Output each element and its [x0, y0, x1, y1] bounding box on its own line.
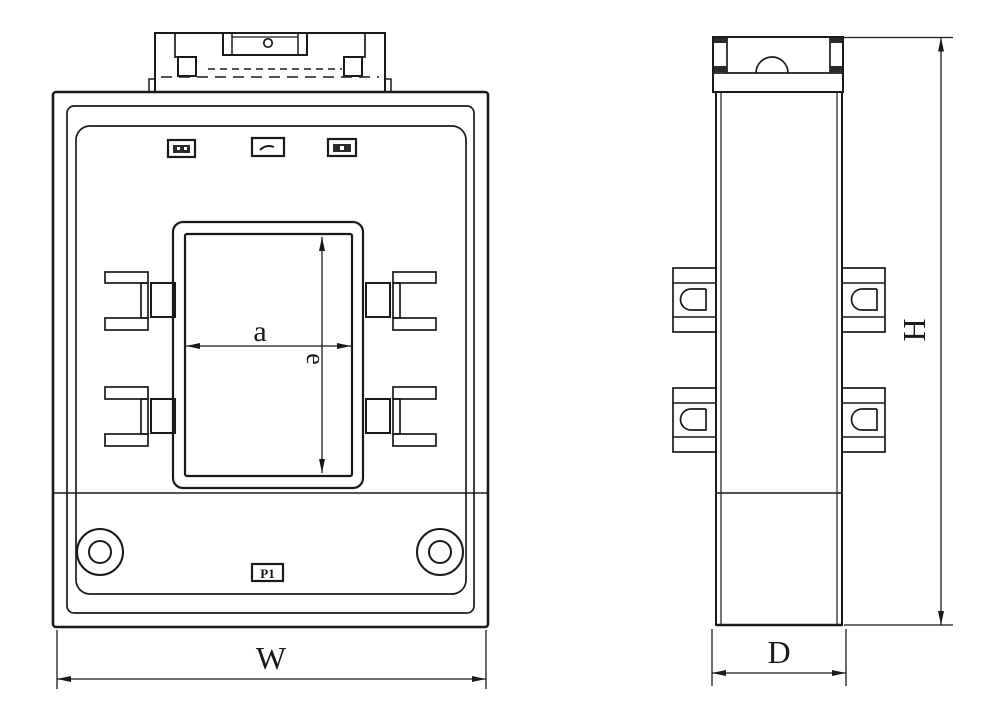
dim-w-arrow-right [472, 676, 486, 682]
clamp-upper-left [105, 272, 175, 330]
dim-w: W [57, 630, 486, 689]
front-view: P1 a e W [53, 33, 488, 689]
side-body [716, 92, 842, 625]
dim-h-arrow-bottom [938, 611, 944, 625]
dim-a-arrow-left [186, 343, 200, 349]
terminal-cover-plate [223, 33, 307, 55]
terminal-marking-center [252, 138, 284, 156]
dim-e: e [301, 237, 330, 473]
dim-d-arrow-right [832, 670, 846, 676]
cap-arch [756, 57, 788, 73]
front-body-frames [53, 92, 488, 627]
terminal-marking-right [328, 139, 356, 156]
p1-terminal-label: P1 [260, 566, 274, 581]
side-cap [713, 37, 843, 92]
clamp-upper-right [366, 272, 436, 330]
dim-e-arrow-bottom [319, 459, 325, 473]
dim-d-label: D [767, 634, 790, 670]
window-outer-frame [173, 222, 363, 488]
dim-h-label: H [896, 318, 932, 341]
p1-terminal-badge: P1 [252, 564, 283, 581]
clamp-lower-right [366, 387, 436, 446]
dim-a-label: a [253, 315, 266, 348]
terminal-marking-left [168, 140, 195, 157]
dim-e-arrow-top [319, 237, 325, 251]
mounting-hole-right [417, 529, 463, 575]
dim-a-arrow-right [337, 343, 351, 349]
terminal-post-right [344, 57, 362, 76]
side-clamp-upper-left [673, 268, 716, 332]
side-clamp-lower-left [673, 388, 716, 452]
mounting-hole-left [77, 529, 123, 575]
technical-drawing-canvas: P1 a e W [0, 0, 981, 716]
side-view: H D [673, 37, 953, 686]
terminal-post-left [178, 57, 196, 76]
dim-d-arrow-left [712, 670, 726, 676]
dim-a: a [186, 315, 351, 349]
cover-screw-hole [264, 39, 272, 47]
dim-w-label: W [256, 640, 287, 676]
side-clamp-upper-right [842, 268, 885, 332]
dim-h-arrow-top [938, 38, 944, 52]
front-terminal-block [149, 33, 391, 92]
dim-w-arrow-left [57, 676, 71, 682]
core-window [173, 222, 363, 488]
clamp-lower-left [105, 387, 175, 446]
dim-e-label: e [301, 353, 330, 365]
technical-drawing-page: P1 a e W [0, 0, 981, 716]
side-clamp-lower-right [842, 388, 885, 452]
dim-d: D [712, 629, 846, 686]
